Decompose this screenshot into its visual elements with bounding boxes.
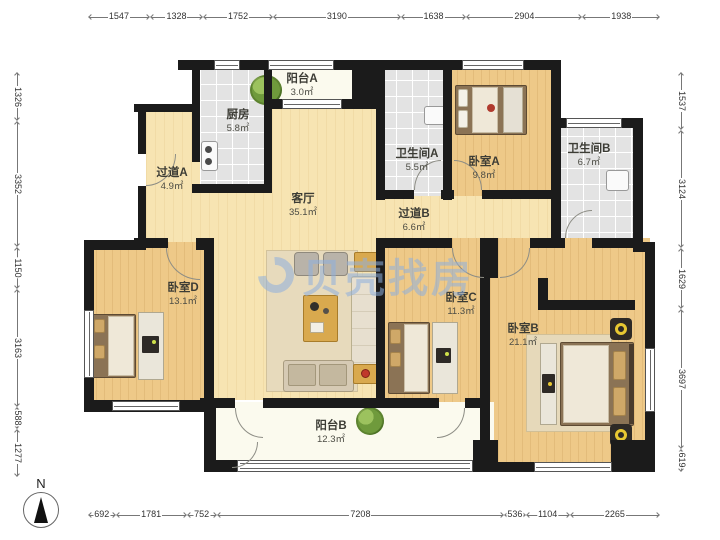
dim-segment: 536 [504, 508, 525, 522]
bed-accent [487, 104, 495, 112]
bed-pillow [94, 345, 105, 359]
room-area: 3.0㎡ [286, 87, 317, 99]
dim-segment: 588 [10, 407, 24, 429]
bed-pillow [458, 110, 468, 128]
dim-segment: 619 [674, 449, 688, 472]
balcony-window [237, 460, 473, 472]
window [534, 462, 612, 472]
wall [443, 60, 452, 200]
room-name: 卧室D [167, 281, 198, 296]
dim-value: 692 [93, 510, 110, 520]
wall [264, 60, 272, 184]
compass: N [18, 477, 64, 528]
dim-value: 1328 [165, 12, 187, 22]
wall [633, 118, 643, 252]
wall [484, 238, 498, 278]
dim-value: 1781 [140, 510, 162, 520]
bed-pillow [613, 351, 626, 380]
room-name: 卫生间A [396, 147, 439, 162]
wall [192, 184, 272, 193]
tv-light [152, 340, 156, 344]
dim-segment: 1547 [88, 10, 150, 24]
room-label-hall-b: 过道B 6.6㎡ [398, 207, 429, 234]
burner [205, 158, 212, 165]
dim-segment: 1150 [10, 247, 24, 290]
bed-blanket [108, 316, 134, 376]
dim-value: 1104 [537, 510, 558, 520]
teapot [310, 302, 319, 311]
room-area: 9.8㎡ [468, 170, 499, 182]
dim-segment: 2265 [570, 508, 660, 522]
dim-segment: 692 [88, 508, 116, 522]
dim-segment: 3163 [10, 289, 24, 407]
room-label-bed-d: 卧室D 13.1㎡ [167, 281, 198, 308]
window [645, 348, 655, 412]
dim-segment: 1328 [150, 10, 203, 24]
armchair [294, 252, 319, 276]
dim-value: 3352 [12, 173, 22, 195]
wall [204, 238, 214, 400]
tv [436, 348, 451, 363]
room-label-kitchen: 厨房 5.8㎡ [227, 108, 250, 135]
ruler-right: 1537 3124 1629 3697 619 [674, 72, 688, 472]
room-label-bed-b: 卧室B 21.1㎡ [507, 322, 538, 349]
wall [134, 238, 168, 248]
dim-value: 3124 [676, 178, 686, 200]
dim-value: 752 [193, 510, 210, 520]
plant-icon [356, 407, 384, 435]
dim-value: 3697 [676, 368, 686, 390]
dim-segment: 1938 [582, 10, 660, 24]
fruit-bowl [361, 369, 370, 378]
wall [465, 398, 482, 408]
dim-value: 1537 [676, 90, 686, 112]
room-label-hall-a: 过道A 4.9㎡ [156, 166, 187, 193]
ruler-bottom: 692 1781 752 7208 536 1104 2265 [88, 508, 660, 522]
dim-segment: 1104 [526, 508, 570, 522]
wall [352, 60, 378, 109]
sofa-cushion [288, 364, 316, 386]
wall [376, 238, 385, 404]
room-label-balcony-a: 阳台A 3.0㎡ [286, 72, 317, 99]
room-name: 过道B [398, 207, 429, 222]
dim-segment: 3124 [674, 130, 688, 248]
room-name: 阳台A [286, 72, 317, 87]
dim-value: 3163 [12, 337, 22, 359]
dim-value: 7208 [349, 510, 371, 520]
dim-segment: 1277 [10, 429, 24, 477]
dim-segment: 3352 [10, 121, 24, 246]
room-name: 卧室B [507, 322, 538, 337]
room-area: 13.1㎡ [167, 296, 198, 308]
wall [376, 190, 414, 199]
room-area: 35.1㎡ [289, 207, 317, 219]
dim-value: 1150 [12, 257, 22, 278]
room-label-bath-a: 卫生间A 5.5㎡ [396, 147, 439, 174]
wall [611, 440, 655, 472]
bed-pillow [390, 329, 401, 344]
dim-segment: 7208 [217, 508, 505, 522]
coffee-table [303, 295, 338, 342]
dim-value: 619 [676, 452, 686, 469]
wall [376, 238, 452, 248]
dim-segment: 1638 [401, 10, 467, 24]
wall [138, 186, 146, 244]
wall [441, 190, 454, 199]
dim-value: 1629 [676, 267, 686, 289]
wall [473, 440, 498, 472]
dim-value: 1277 [12, 442, 22, 464]
bed-pillow [458, 89, 468, 107]
armchair [323, 252, 348, 276]
room-name: 客厅 [289, 192, 317, 207]
room-area: 5.8㎡ [227, 123, 250, 135]
compass-needle [34, 497, 48, 523]
sofa [351, 276, 378, 366]
dim-value: 2904 [513, 12, 535, 22]
dim-value: 1326 [12, 86, 22, 108]
dim-value: 3190 [326, 12, 348, 22]
window [268, 60, 334, 70]
room-area: 11.3㎡ [445, 306, 476, 318]
window [112, 401, 180, 411]
room-area: 12.3㎡ [315, 434, 346, 446]
window [462, 60, 524, 70]
dim-segment: 752 [187, 508, 217, 522]
tray [310, 322, 324, 333]
wall [592, 238, 643, 248]
room-area: 6.6㎡ [398, 222, 429, 234]
dim-segment: 1629 [674, 248, 688, 309]
bed-pillow [613, 387, 626, 416]
window [214, 60, 240, 70]
room-name: 卫生间B [568, 142, 611, 157]
room-name: 卧室C [445, 291, 476, 306]
side-table [354, 252, 378, 272]
wall [263, 398, 439, 408]
wall [645, 242, 655, 452]
ruler-left: 1326 3352 1150 3163 588 1277 [10, 72, 24, 477]
dim-segment: 3697 [674, 309, 688, 448]
dim-value: 1547 [108, 12, 130, 22]
room-name: 阳台B [315, 419, 346, 434]
tv-light [445, 352, 449, 356]
cup [323, 308, 329, 314]
window [566, 118, 622, 128]
compass-icon [23, 492, 59, 528]
compass-north-label: N [18, 477, 64, 490]
tv-light [548, 382, 552, 386]
room-name: 厨房 [227, 108, 250, 123]
dim-value: 1938 [610, 12, 632, 22]
dim-value: 588 [12, 410, 22, 427]
headboard [629, 344, 634, 424]
burner [205, 146, 212, 153]
room-area: 6.7㎡ [568, 157, 611, 169]
ruler-top: 1547 1328 1752 3190 1638 2904 1938 [88, 10, 660, 24]
room-label-balcony-b: 阳台B 12.3㎡ [315, 419, 346, 446]
bed-blanket [404, 324, 428, 392]
bed-blanket [563, 345, 609, 423]
sink [606, 170, 629, 191]
dim-value: 536 [506, 510, 523, 520]
tv [142, 336, 159, 353]
bed-pillow [390, 352, 401, 367]
wall [376, 60, 385, 200]
room-name: 过道A [156, 166, 187, 181]
wall [538, 300, 635, 310]
wall [192, 60, 200, 162]
sofa-cushion [319, 364, 347, 386]
room-name: 卧室A [468, 155, 499, 170]
window [282, 99, 342, 109]
dim-segment: 1326 [10, 72, 24, 121]
room-area: 4.9㎡ [156, 181, 187, 193]
room-label-living: 客厅 35.1㎡ [289, 192, 317, 219]
lamp-glow [615, 323, 627, 335]
room-area: 5.5㎡ [396, 162, 439, 174]
room-label-bed-c: 卧室C 11.3㎡ [445, 291, 476, 318]
dim-segment: 3190 [273, 10, 401, 24]
dim-segment: 2904 [466, 10, 582, 24]
wall [551, 60, 561, 248]
dim-value: 1752 [227, 12, 249, 22]
dim-segment: 1781 [116, 508, 187, 522]
bed-pillow [94, 319, 105, 333]
room-label-bath-b: 卫生间B 6.7㎡ [568, 142, 611, 169]
window [84, 310, 94, 378]
floorplan-canvas: 阳台A 3.0㎡ 厨房 5.8㎡ 过道A 4.9㎡ 客厅 35.1㎡ 卫生间A … [0, 0, 720, 540]
wall [134, 104, 200, 112]
room-area: 21.1㎡ [507, 337, 538, 349]
dim-value: 2265 [604, 510, 626, 520]
wall [482, 190, 561, 199]
wall [530, 238, 555, 248]
dim-segment: 1537 [674, 72, 688, 130]
dim-segment: 1752 [203, 10, 273, 24]
room-label-bed-a: 卧室A 9.8㎡ [468, 155, 499, 182]
dim-value: 1638 [422, 12, 444, 22]
bed-bench [503, 87, 523, 133]
